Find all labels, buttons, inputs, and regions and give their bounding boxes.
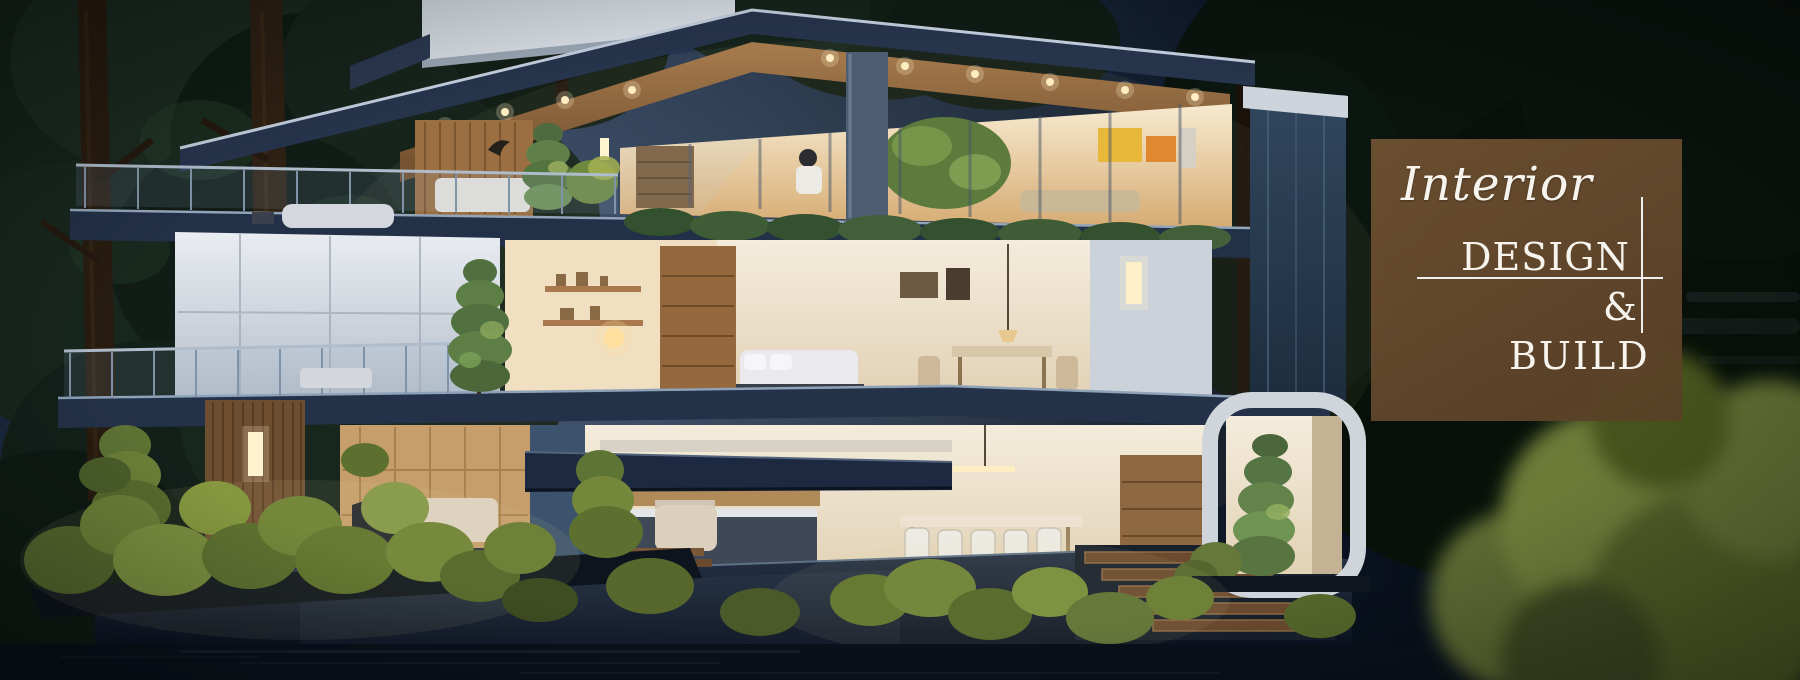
card-horizontal-divider bbox=[1417, 277, 1663, 279]
hero-banner: Interior DESIGN & BUILD bbox=[0, 0, 1800, 680]
card-word-build: BUILD bbox=[1509, 334, 1650, 378]
card-word-design: DESIGN bbox=[1461, 235, 1630, 279]
card-word-ampersand: & bbox=[1603, 285, 1637, 329]
interior-design-build-card: Interior DESIGN & BUILD bbox=[1371, 139, 1682, 421]
card-word-interior: Interior bbox=[1401, 157, 1593, 212]
card-vertical-divider bbox=[1641, 197, 1643, 333]
